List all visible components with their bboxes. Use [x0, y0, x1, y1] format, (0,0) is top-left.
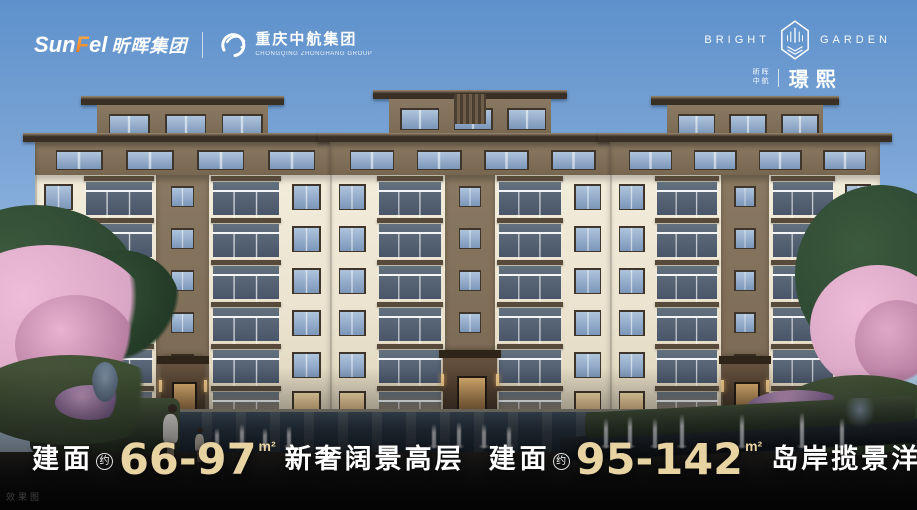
- brand-word-right: GARDEN: [820, 34, 891, 46]
- slogan-prefix: 建面: [489, 437, 551, 476]
- approx-circle-badge: 约: [96, 453, 113, 470]
- product-tagline: 岛岸揽景洋房: [771, 437, 917, 476]
- area-unit: m²: [259, 438, 276, 454]
- zhonghang-en-label: CHONGQING ZHONGHANG GROUP: [255, 51, 372, 58]
- brand-emblem-icon: [779, 20, 811, 60]
- sunfel-accent-letter: F: [76, 32, 89, 57]
- brand-name-cn: 璟熙: [786, 63, 843, 92]
- zhonghang-swirl-icon: [218, 30, 248, 60]
- property-ad-poster: SunFel 昕晖集团 重庆中航集团 CHONGQING ZHONGHANG G…: [0, 0, 917, 510]
- brand-word-left: BRIGHT: [704, 34, 770, 46]
- slogan-highrise: 建面 约 66-97 m² 新奢阔景高层: [32, 437, 465, 479]
- slogan-prefix: 建面: [32, 437, 94, 476]
- zhonghang-cn-label: 重庆中航集团: [255, 32, 372, 49]
- brand-sub-divider: [778, 69, 779, 87]
- zhonghang-logo: 重庆中航集团 CHONGQING ZHONGHANG GROUP: [218, 30, 372, 60]
- product-tagline: 新奢阔景高层: [285, 437, 465, 476]
- sunfel-wordmark: SunFel: [34, 32, 107, 58]
- brand-sub-stack: 昕晖 中航: [753, 69, 771, 87]
- sunfel-cn-label: 昕晖集团: [111, 32, 187, 58]
- area-slogan-bar: 建面 约 66-97 m² 新奢阔景高层 建面 约 95-142 m² 岛岸揽景…: [32, 437, 917, 479]
- render-disclaimer-watermark: 效果图: [6, 490, 42, 503]
- sunfel-logo: SunFel 昕晖集团: [34, 32, 187, 58]
- person-head: [168, 404, 177, 413]
- approx-circle-badge: 约: [553, 453, 570, 470]
- slogan-mansion: 建面 约 95-142 m² 岛岸揽景洋房: [489, 437, 917, 479]
- logo-divider: [202, 32, 203, 58]
- area-range: 66-97: [119, 443, 257, 478]
- person-head: [197, 428, 202, 433]
- area-range: 95-142: [576, 443, 743, 478]
- area-unit: m²: [745, 438, 762, 454]
- developer-logos: SunFel 昕晖集团 重庆中航集团 CHONGQING ZHONGHANG G…: [34, 30, 372, 60]
- project-brand: BRIGHT GARDEN 昕晖 中航 璟熙: [704, 20, 891, 92]
